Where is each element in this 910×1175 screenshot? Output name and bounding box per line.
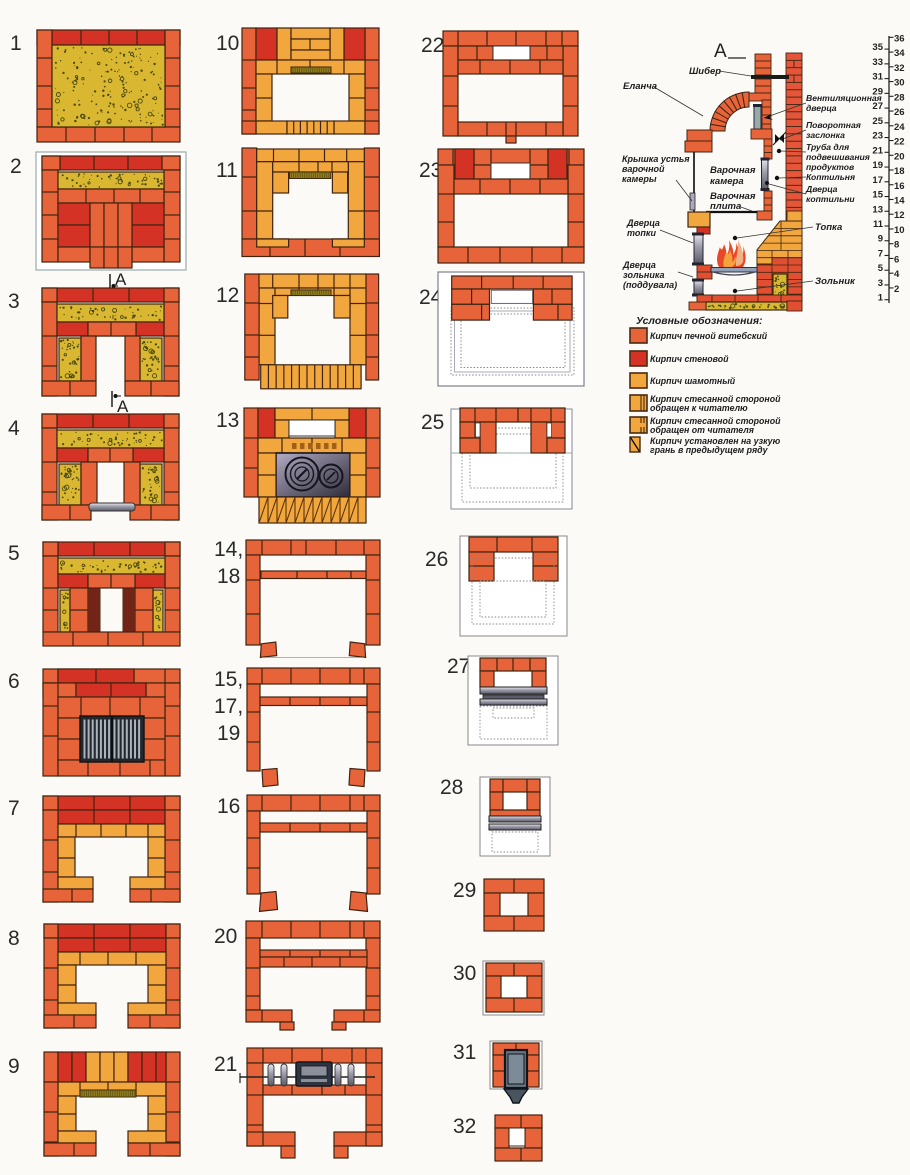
svg-text:9: 9 [878, 234, 883, 245]
svg-text:Топка: Топка [815, 222, 842, 233]
svg-text:28: 28 [894, 92, 905, 103]
svg-text:7: 7 [8, 797, 20, 820]
svg-text:Дверца: Дверца [805, 184, 838, 194]
svg-text:27: 27 [447, 655, 470, 678]
svg-text:23: 23 [872, 131, 883, 142]
svg-text:35: 35 [872, 42, 883, 53]
svg-text:6: 6 [894, 254, 899, 265]
svg-text:обращен к читателю: обращен к читателю [650, 403, 748, 413]
svg-text:Труба для: Труба для [806, 142, 849, 152]
svg-text:5: 5 [878, 263, 884, 274]
svg-text:Дверца: Дверца [622, 260, 656, 270]
svg-text:14: 14 [894, 196, 905, 207]
svg-text:22: 22 [421, 34, 444, 57]
svg-text:грань в предыдущем ряду: грань в предыдущем ряду [650, 445, 769, 455]
svg-text:3: 3 [8, 290, 20, 313]
svg-text:Дверца: Дверца [626, 218, 660, 228]
svg-text:8: 8 [8, 927, 20, 950]
svg-text:12: 12 [216, 284, 239, 307]
svg-text:заслонка: заслонка [806, 130, 845, 140]
svg-text:плита: плита [710, 201, 741, 212]
svg-text:А: А [714, 41, 727, 62]
svg-text:13: 13 [216, 409, 239, 432]
svg-text:32: 32 [453, 1115, 476, 1138]
svg-text:А: А [115, 270, 127, 289]
svg-text:29: 29 [453, 879, 476, 902]
svg-text:19: 19 [217, 722, 240, 745]
svg-text:камеры: камеры [622, 174, 657, 184]
svg-text:дверца: дверца [806, 103, 837, 113]
svg-text:Варочная: Варочная [710, 165, 756, 176]
svg-text:18: 18 [894, 166, 905, 177]
svg-text:Еланча: Еланча [623, 81, 657, 92]
svg-text:32: 32 [894, 63, 905, 74]
svg-text:12: 12 [894, 210, 905, 221]
svg-text:17: 17 [872, 175, 883, 186]
svg-text:21: 21 [872, 145, 883, 156]
svg-text:16: 16 [217, 795, 240, 818]
svg-text:5: 5 [8, 542, 20, 565]
svg-text:8: 8 [894, 240, 899, 251]
svg-text:Кирпич стеновой: Кирпич стеновой [650, 354, 729, 364]
svg-text:22: 22 [894, 137, 905, 148]
svg-text:1: 1 [878, 293, 884, 304]
svg-text:20: 20 [894, 151, 905, 162]
svg-text:зольника: зольника [623, 270, 665, 280]
svg-text:4: 4 [8, 417, 20, 440]
svg-text:33: 33 [872, 57, 883, 68]
svg-text:9: 9 [8, 1055, 20, 1078]
svg-text:продуктов: продуктов [806, 162, 854, 172]
svg-text:камера: камера [710, 176, 744, 187]
svg-text:Кирпич шамотный: Кирпич шамотный [650, 376, 736, 386]
svg-text:Кирпич печной витебский: Кирпич печной витебский [650, 331, 768, 341]
svg-text:11: 11 [216, 159, 238, 182]
svg-text:3: 3 [878, 278, 883, 289]
svg-text:Условные обозначения:: Условные обозначения: [636, 315, 763, 327]
svg-text:10: 10 [894, 225, 905, 236]
svg-text:7: 7 [878, 249, 883, 260]
svg-text:Крышка устья: Крышка устья [622, 154, 690, 164]
svg-text:Шибер: Шибер [689, 66, 721, 77]
svg-text:34: 34 [894, 48, 905, 59]
svg-text:4: 4 [894, 269, 900, 280]
svg-text:26: 26 [425, 548, 448, 571]
svg-text:11: 11 [873, 219, 884, 230]
svg-text:20: 20 [214, 925, 237, 948]
svg-text:13: 13 [872, 204, 883, 215]
svg-text:25: 25 [421, 411, 444, 434]
svg-text:30: 30 [894, 78, 905, 89]
svg-text:36: 36 [894, 33, 905, 44]
svg-text:10: 10 [216, 32, 239, 55]
svg-text:16: 16 [894, 181, 905, 192]
svg-text:21: 21 [214, 1053, 237, 1076]
svg-text:19: 19 [872, 160, 883, 171]
svg-text:(поддувала): (поддувала) [623, 280, 677, 290]
svg-text:18: 18 [217, 565, 240, 588]
svg-text:31: 31 [453, 1041, 476, 1064]
svg-text:24: 24 [894, 122, 905, 133]
svg-text:коптильни: коптильни [806, 194, 855, 204]
svg-text:Вентиляционная: Вентиляционная [806, 93, 882, 103]
svg-text:26: 26 [894, 107, 905, 118]
svg-text:обращен от читателя: обращен от читателя [650, 425, 755, 435]
svg-text:30: 30 [453, 962, 476, 985]
svg-text:варочной: варочной [622, 164, 665, 174]
svg-text:подвешивания: подвешивания [806, 152, 870, 162]
svg-text:Зольник: Зольник [815, 276, 856, 287]
svg-text:топки: топки [627, 228, 656, 238]
svg-text:15,: 15, [214, 668, 243, 691]
svg-text:28: 28 [440, 776, 463, 799]
svg-text:25: 25 [872, 116, 883, 127]
svg-text:15: 15 [872, 190, 883, 201]
svg-text:14,: 14, [214, 538, 243, 561]
svg-text:Поворотная: Поворотная [806, 120, 861, 130]
svg-text:2: 2 [894, 284, 899, 295]
svg-text:6: 6 [8, 670, 20, 693]
svg-text:Коптильня: Коптильня [806, 172, 855, 182]
svg-text:А: А [117, 397, 129, 416]
svg-text:17,: 17, [214, 695, 243, 718]
svg-text:2: 2 [10, 155, 22, 178]
svg-text:1: 1 [10, 32, 22, 55]
svg-text:31: 31 [872, 72, 883, 83]
